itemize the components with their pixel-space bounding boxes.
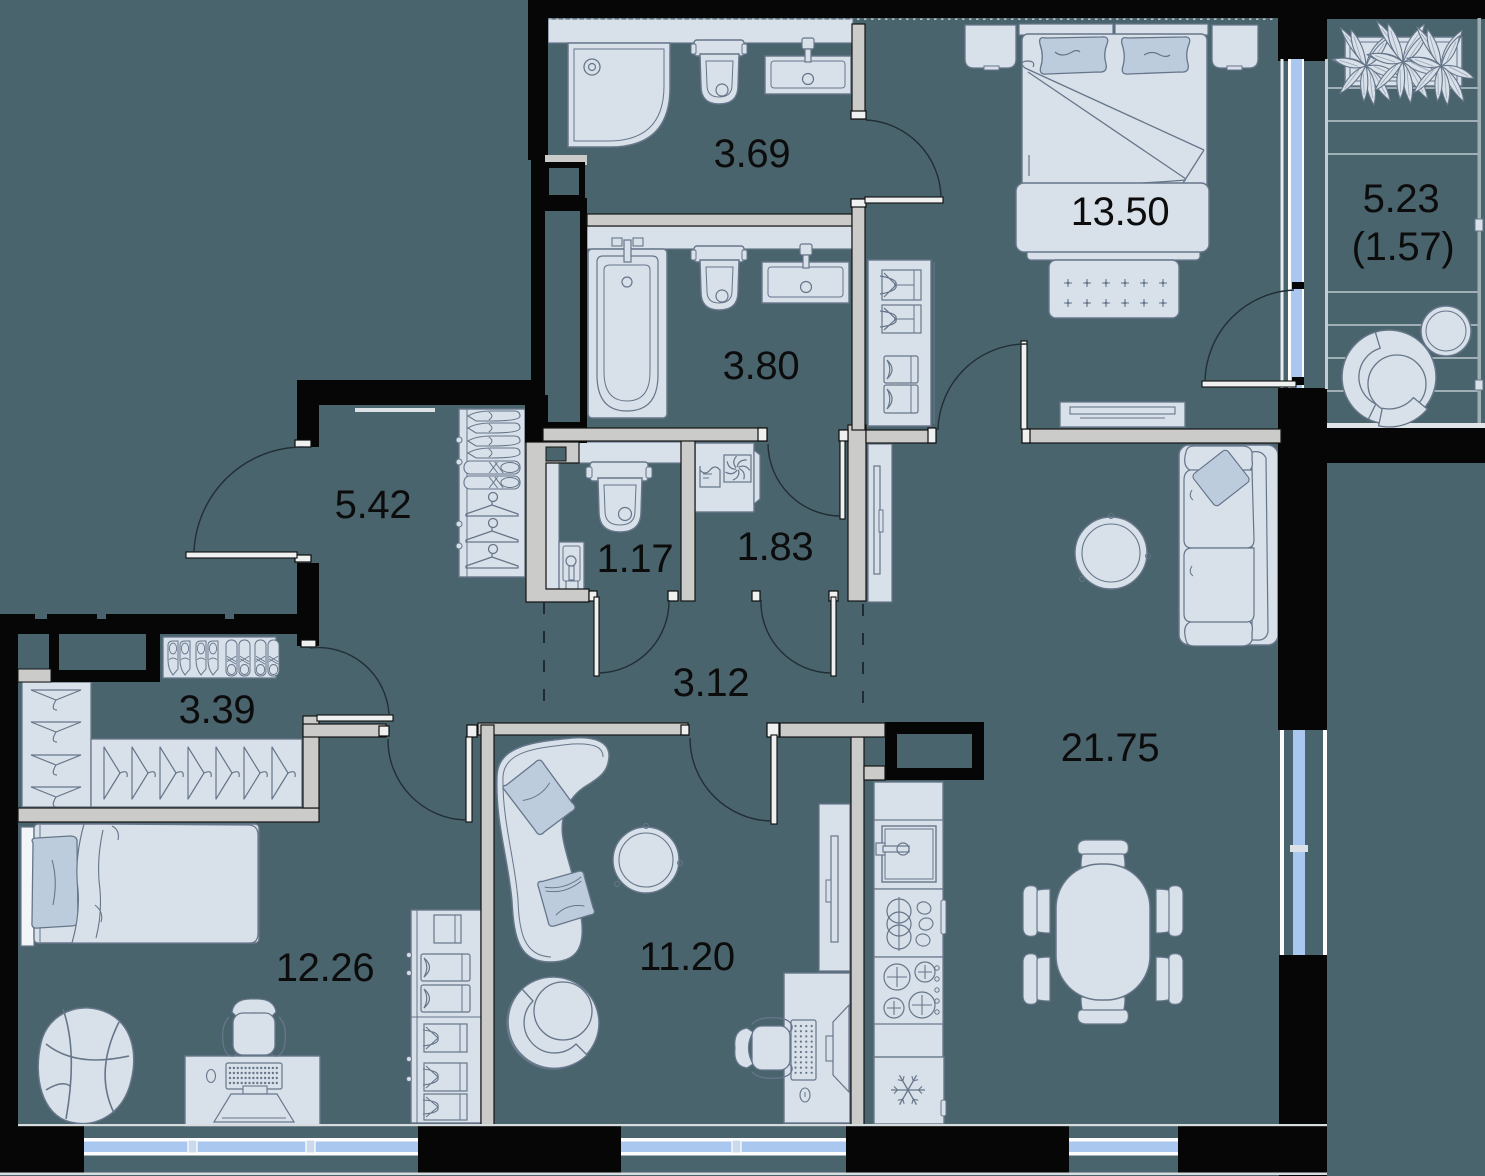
svg-text:11.20: 11.20 (639, 935, 735, 979)
svg-text:1.17: 1.17 (597, 537, 674, 581)
svg-text:3.80: 3.80 (723, 344, 800, 388)
svg-text:12.26: 12.26 (276, 946, 375, 990)
svg-text:13.50: 13.50 (1071, 190, 1170, 234)
svg-text:3.39: 3.39 (179, 688, 256, 732)
svg-text:5.42: 5.42 (335, 483, 412, 527)
svg-text:21.75: 21.75 (1061, 726, 1160, 770)
svg-text:1.83: 1.83 (737, 525, 814, 569)
svg-text:3.69: 3.69 (714, 132, 791, 176)
svg-text:(1.57): (1.57) (1352, 225, 1455, 269)
svg-text:5.23: 5.23 (1363, 177, 1440, 221)
svg-text:3.12: 3.12 (673, 661, 750, 705)
